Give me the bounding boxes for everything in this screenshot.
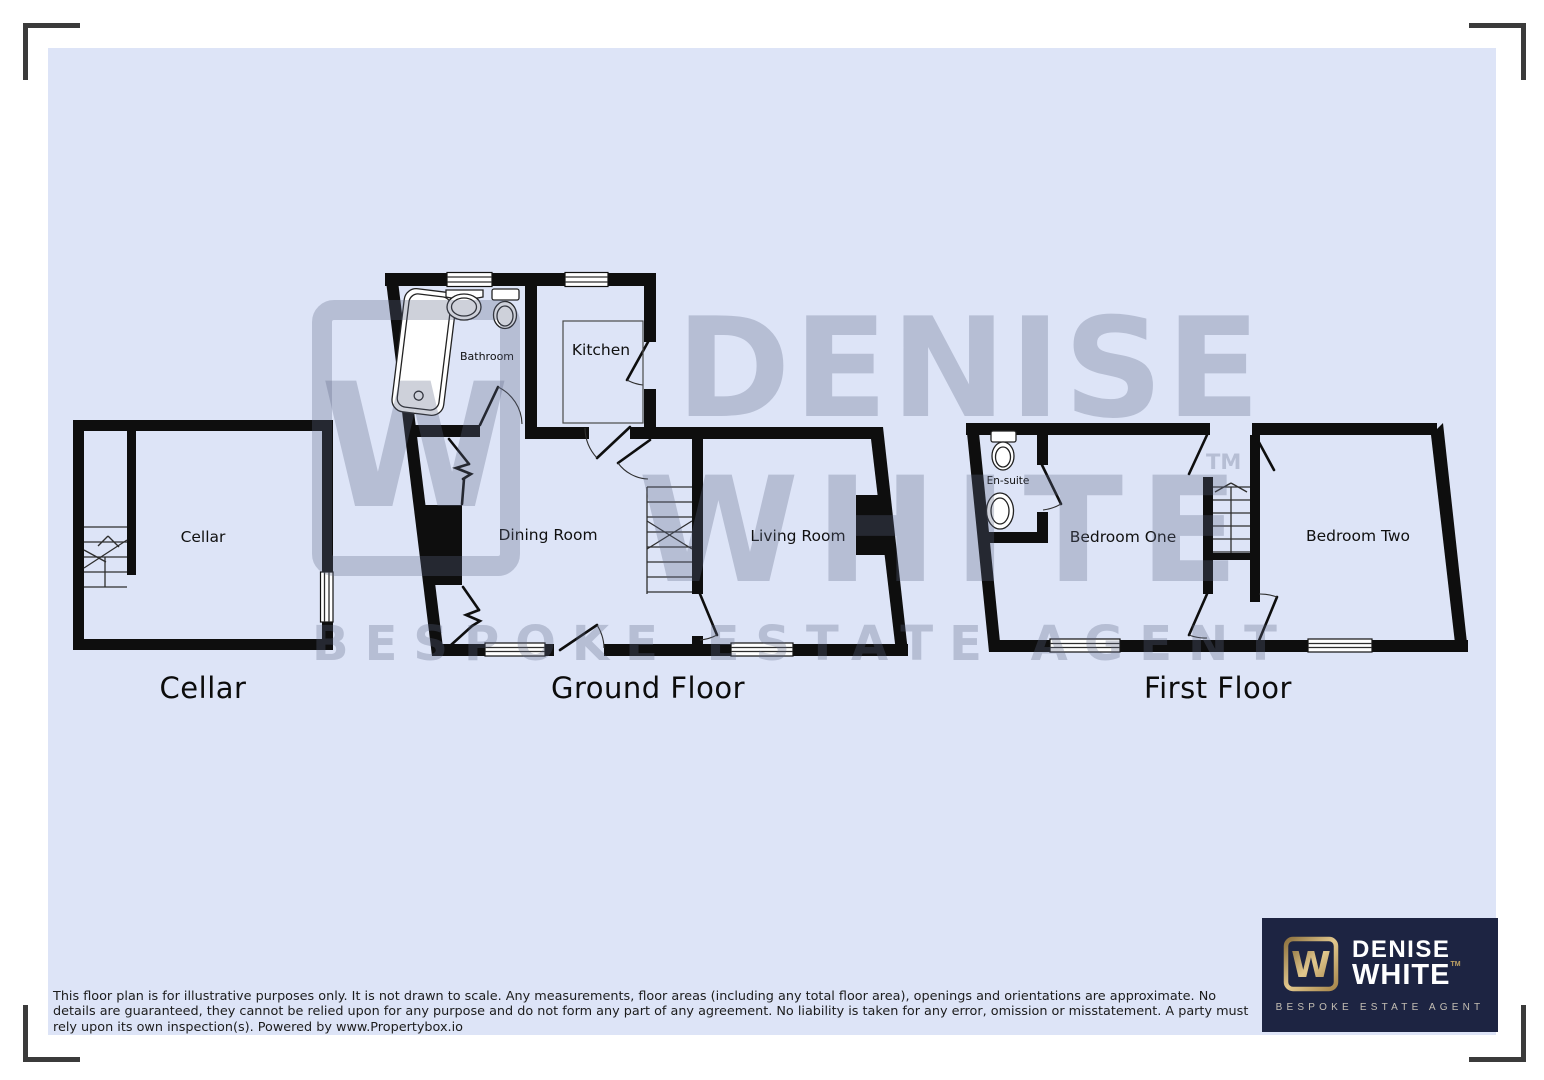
- sink-icon: [446, 290, 483, 320]
- stair-top-doors: [1189, 435, 1274, 474]
- ground-floor-title: Ground Floor: [498, 671, 798, 705]
- bathroom-door: [480, 387, 522, 425]
- living-room-door: [700, 594, 717, 640]
- room-label-bedroom-two: Bedroom Two: [1306, 527, 1410, 545]
- room-label-dining-room: Dining Room: [498, 526, 597, 544]
- room-label-bathroom: Bathroom: [460, 350, 514, 363]
- dining-left-opening-upper: [449, 439, 471, 504]
- cellar-window: [321, 572, 334, 622]
- dining-window: [485, 643, 545, 656]
- first-floor-plan: En-suite Bedroom One Bedroom Two: [963, 418, 1471, 656]
- cellar-stairs-icon: [84, 527, 127, 587]
- dining-left-opening-lower: [451, 587, 480, 645]
- room-label-kitchen: Kitchen: [572, 341, 630, 359]
- front-door: [560, 625, 604, 650]
- ground-stairs-icon: [647, 487, 692, 594]
- bedroom-one-window: [1050, 639, 1120, 652]
- cellar-title: Cellar: [70, 671, 336, 705]
- disclaimer-line-1: This floor plan is for illustrative purp…: [53, 989, 1248, 1004]
- crop-mark-top-right: [1469, 23, 1526, 80]
- logo-word-white: WHITETM: [1352, 959, 1461, 992]
- logo-monogram-icon: W: [1282, 935, 1340, 993]
- first-floor-title: First Floor: [1068, 671, 1368, 705]
- room-label-cellar: Cellar: [181, 528, 226, 546]
- ensuite-door: [1042, 465, 1061, 510]
- room-label-living-room: Living Room: [750, 527, 845, 545]
- crop-mark-bottom-left: [23, 1005, 80, 1062]
- living-window: [731, 643, 793, 656]
- cellar-plan: Cellar: [70, 415, 336, 655]
- ensuite-toilet-icon: [991, 431, 1016, 470]
- kitchen-external-door: [627, 342, 648, 385]
- ground-floor-plan: Bathroom Kitchen Dining Room Living Room: [383, 270, 911, 662]
- kitchen-dining-door: [585, 427, 630, 458]
- logo-tm: TM: [1450, 961, 1460, 968]
- crop-mark-top-left: [23, 23, 80, 80]
- room-label-bedroom-one: Bedroom One: [1070, 528, 1177, 546]
- ensuite-sink-icon: [987, 493, 1014, 529]
- kitchen-window: [565, 273, 608, 287]
- floorplan-page: Cellar: [0, 0, 1544, 1080]
- crop-mark-bottom-right: [1469, 1005, 1526, 1062]
- bathroom-window: [447, 273, 492, 287]
- bedroom-two-door: [1258, 594, 1277, 643]
- disclaimer-line-2: details are guaranteed, they cannot be r…: [53, 1004, 1248, 1019]
- stairs-entry-door: [618, 440, 650, 479]
- disclaimer-text: This floor plan is for illustrative purp…: [53, 989, 1248, 1035]
- logo-tagline: BESPOKE ESTATE AGENT: [1262, 1002, 1498, 1013]
- bedroom-one-door: [1189, 594, 1207, 638]
- toilet-icon: [492, 289, 519, 329]
- svg-text:W: W: [1291, 945, 1331, 986]
- bedroom-two-window: [1308, 639, 1372, 652]
- first-stairs-icon: [1213, 483, 1250, 553]
- agency-logo: W DENISE WHITETM BESPOKE ESTATE AGENT: [1262, 918, 1498, 1032]
- disclaimer-line-3: rely upon its own inspection(s). Powered…: [53, 1020, 1248, 1035]
- room-label-ensuite: En-suite: [987, 475, 1030, 487]
